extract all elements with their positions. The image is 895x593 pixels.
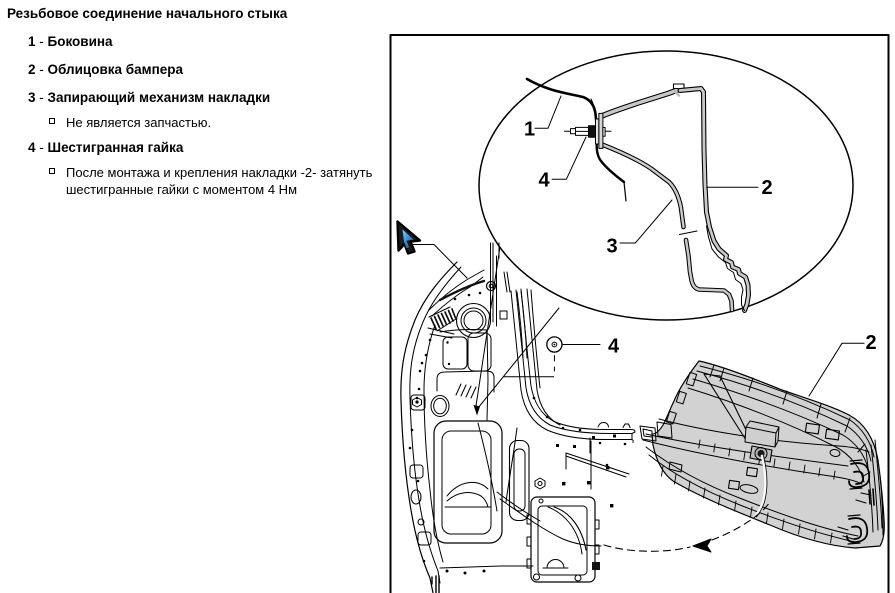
svg-text:4: 4 [539,170,551,192]
svg-text:4: 4 [608,335,620,357]
svg-text:1: 1 [524,119,535,141]
svg-text:2: 2 [866,332,877,354]
svg-text:3: 3 [607,236,618,258]
svg-text:2: 2 [762,177,773,199]
